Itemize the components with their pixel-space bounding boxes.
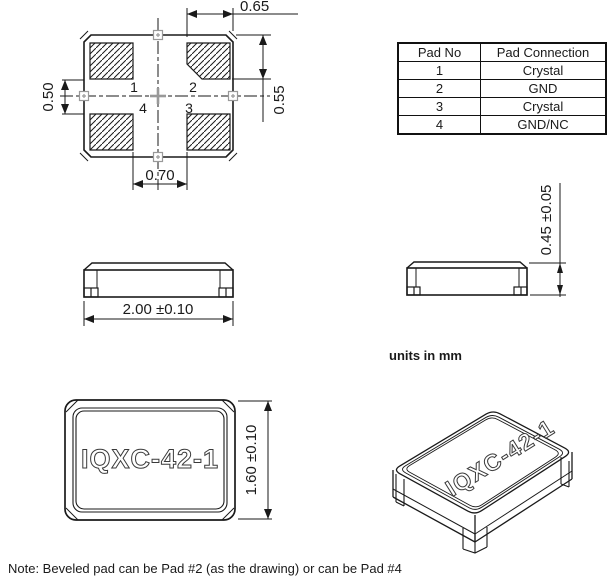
pad-no-cell: 1 <box>398 62 481 80</box>
body-profile <box>84 270 233 297</box>
iso-view: IQXC-42-1 <box>393 412 572 553</box>
pad-no-cell: 3 <box>398 98 481 116</box>
header-pad-connection: Pad Connection <box>481 43 607 62</box>
table-header-row: Pad No Pad Connection <box>398 43 606 62</box>
dim-width-value: 2.00 ±0.10 <box>123 301 194 318</box>
pad-connection-cell: GND <box>481 80 607 98</box>
pad-4-label: 4 <box>139 100 147 116</box>
pad-connection-cell: Crystal <box>481 62 607 80</box>
header-pad-no: Pad No <box>398 43 481 62</box>
side-view-front: 2.00 ±0.10 <box>84 263 233 326</box>
body-profile <box>407 268 527 295</box>
lid-profile <box>407 262 527 268</box>
pad-no-cell: 2 <box>398 80 481 98</box>
table-row: 3 Crystal <box>398 98 606 116</box>
dim-length: 1.60 ±0.10 <box>238 401 272 519</box>
units-label: units in mm <box>389 348 462 363</box>
dim-height: 0.45 ±0.05 <box>529 183 566 297</box>
pad-4 <box>90 114 133 150</box>
dim-left-value: 0.50 <box>40 82 57 111</box>
pad-2-label: 2 <box>189 79 197 95</box>
lid-profile <box>84 263 233 270</box>
dim-right: 0.55 <box>232 35 288 122</box>
dim-left: 0.50 <box>40 80 84 114</box>
iso-part-number-text: IQXC-42-1 <box>441 414 559 501</box>
pad-2-beveled <box>187 43 230 79</box>
pad-no-cell: 4 <box>398 116 481 135</box>
feet <box>407 287 527 295</box>
lid-top-view: IQXC-42-1 1.60 ±0.10 <box>65 400 272 520</box>
dim-height-value: 0.45 ±0.05 <box>538 185 555 256</box>
pad-3 <box>187 114 230 150</box>
pad-number-labels: 1 2 4 3 <box>130 79 197 116</box>
pad-connection-table: Pad No Pad Connection 1 Crystal 2 GND 3 … <box>397 42 607 135</box>
table-row: 4 GND/NC <box>398 116 606 135</box>
dim-top-value: 0.65 <box>240 0 269 15</box>
dim-top: 0.65 <box>187 0 298 37</box>
note-text: Note: Beveled pad can be Pad #2 (as the … <box>8 561 402 576</box>
pad-1-label: 1 <box>130 79 138 95</box>
dim-width: 2.00 ±0.10 <box>84 301 233 326</box>
wall-lines <box>416 268 519 287</box>
pad-connection-cell: Crystal <box>481 98 607 116</box>
dim-right-value: 0.55 <box>271 85 288 114</box>
wall-lines <box>97 270 220 288</box>
dim-length-value: 1.60 ±0.10 <box>243 425 260 496</box>
drawing-sheet: 1 2 4 3 0.65 0.55 <box>0 0 611 581</box>
feet <box>84 288 233 297</box>
part-number-text: IQXC-42-1 <box>81 444 219 474</box>
table-row: 2 GND <box>398 80 606 98</box>
center-cross-icon <box>150 88 166 104</box>
side-view-right: 0.45 ±0.05 <box>407 183 566 297</box>
pad-1 <box>90 43 133 79</box>
dim-bottom-value: 0.70 <box>145 167 174 184</box>
table-row: 1 Crystal <box>398 62 606 80</box>
pad-connection-cell: GND/NC <box>481 116 607 135</box>
top-view-drawing: 1 2 4 3 0.65 0.55 <box>40 0 298 190</box>
pad-3-label: 3 <box>185 100 193 116</box>
